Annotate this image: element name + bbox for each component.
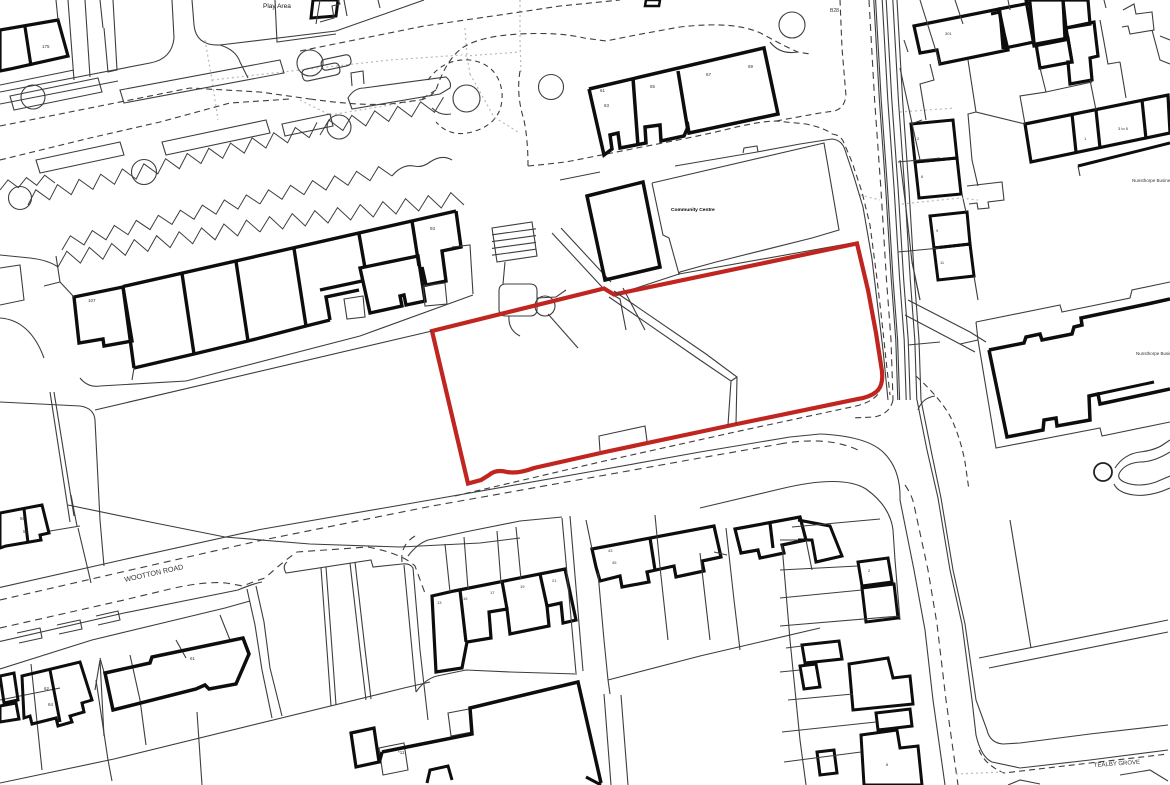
svg-text:*11: *11 (398, 750, 405, 755)
svg-text:65: 65 (650, 84, 656, 89)
svg-text:Community Centre: Community Centre (671, 207, 715, 213)
svg-text:107: 107 (88, 298, 96, 303)
svg-text:Nunsthorpe Business: Nunsthorpe Business (1136, 351, 1170, 356)
svg-text:62: 62 (44, 686, 50, 691)
svg-text:21: 21 (552, 578, 557, 583)
svg-text:17: 17 (490, 590, 495, 595)
svg-text:19: 19 (520, 584, 525, 589)
svg-text:63: 63 (604, 103, 610, 108)
svg-text:64: 64 (48, 702, 54, 707)
svg-text:67: 67 (706, 72, 712, 77)
svg-text:B28: B28 (830, 8, 839, 14)
svg-text:61: 61 (600, 88, 606, 93)
svg-text:58: 58 (23, 529, 29, 534)
svg-text:45: 45 (612, 560, 617, 565)
svg-text:43: 43 (608, 548, 613, 553)
svg-text:Play Area: Play Area (263, 3, 291, 10)
svg-text:Nunsthorpe Business: Nunsthorpe Business (1132, 178, 1170, 183)
svg-text:13: 13 (437, 600, 442, 605)
svg-text:56: 56 (20, 516, 26, 521)
svg-text:301: 301 (945, 31, 952, 36)
svg-text:93: 93 (430, 226, 436, 231)
svg-text:61: 61 (190, 656, 196, 661)
svg-text:69: 69 (748, 64, 754, 69)
svg-text:15: 15 (463, 596, 468, 601)
svg-text:3 to 5: 3 to 5 (1118, 126, 1129, 131)
svg-text:175: 175 (42, 44, 50, 49)
